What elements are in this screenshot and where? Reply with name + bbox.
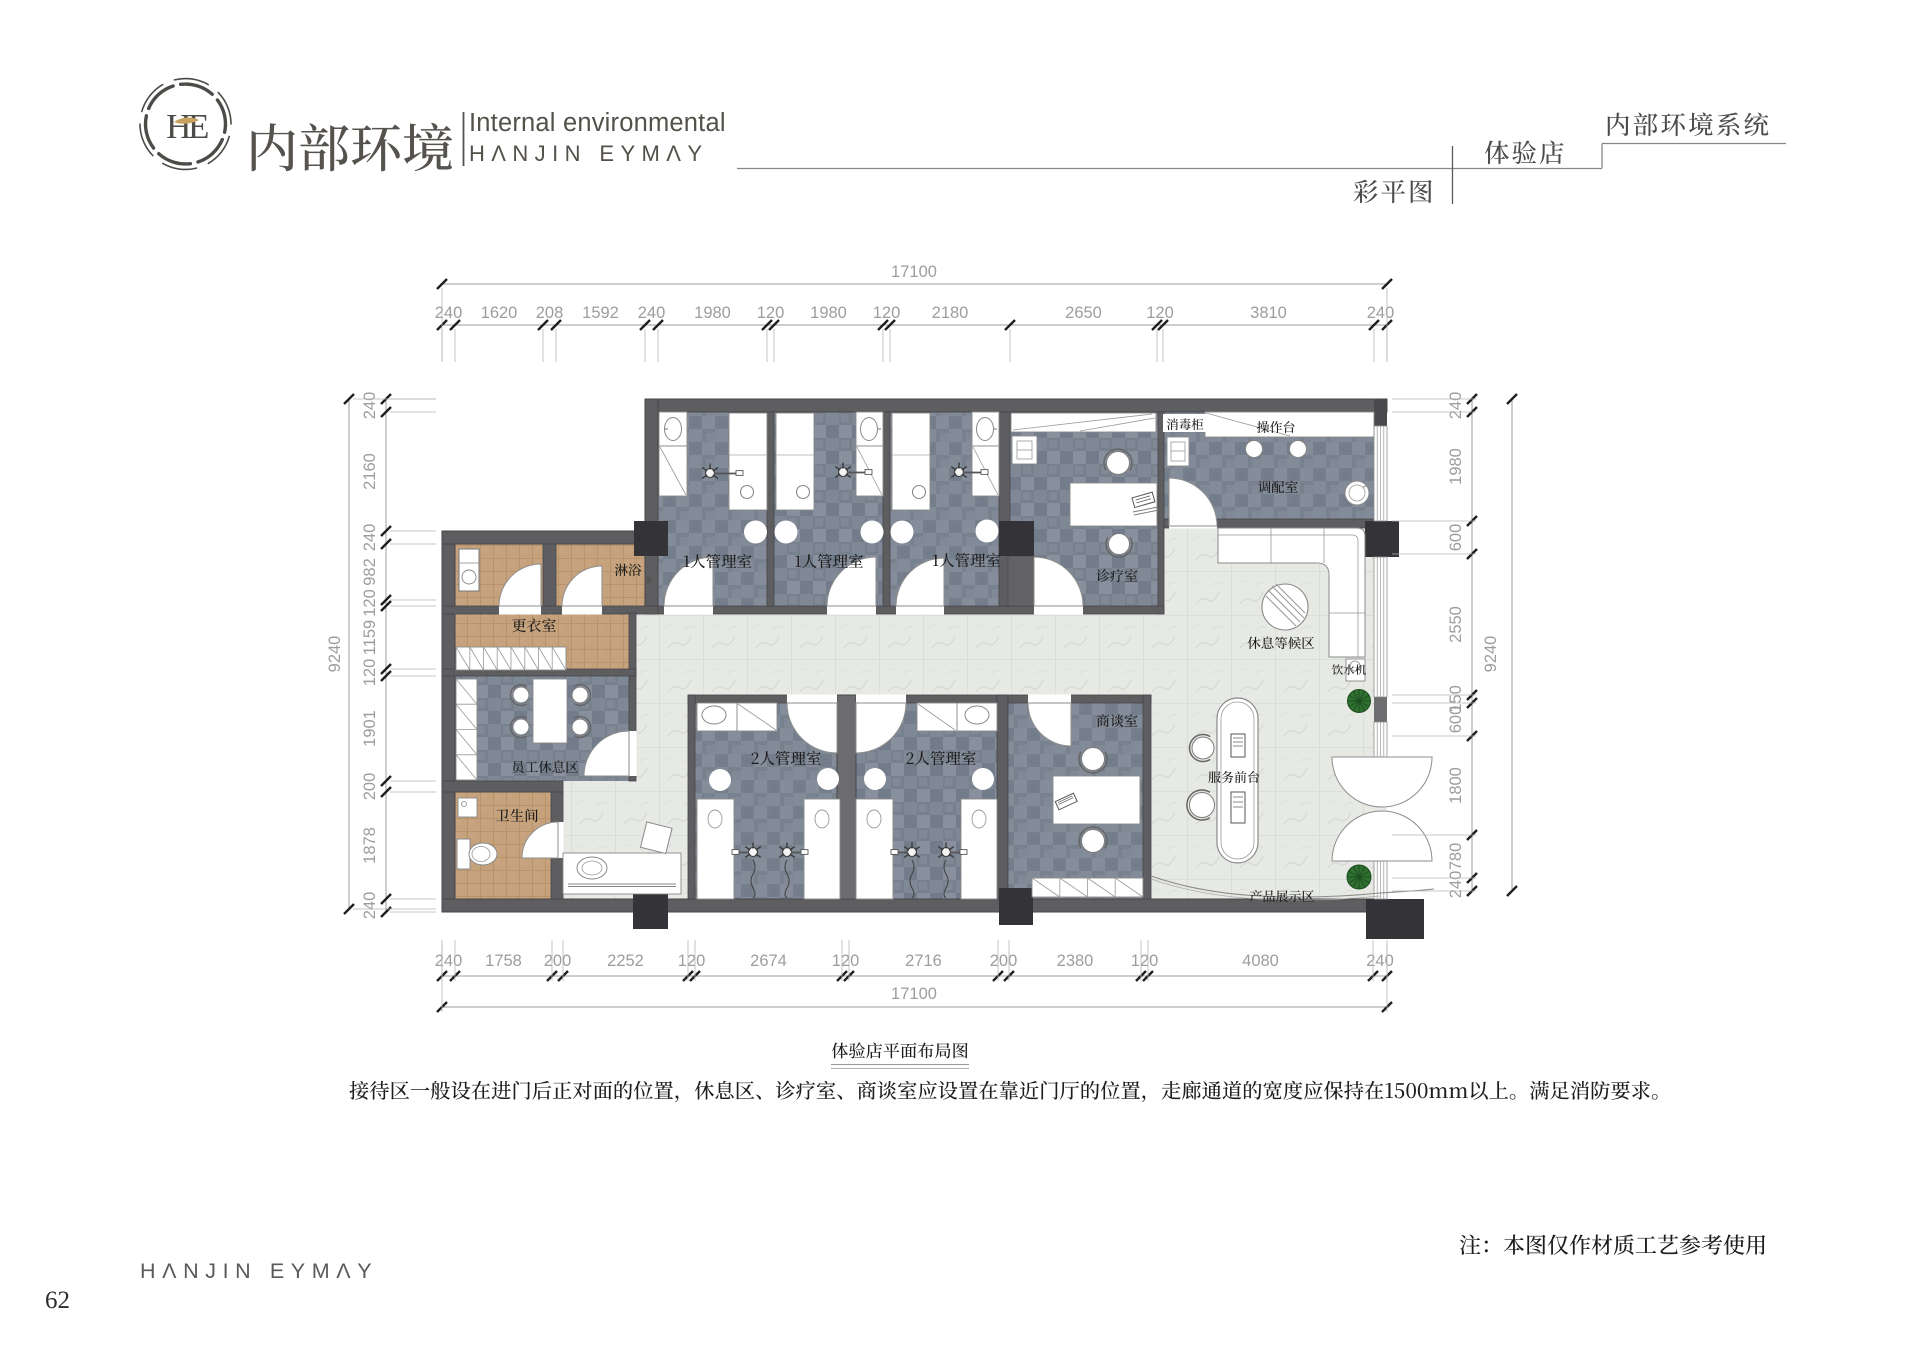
svg-text:1980: 1980 bbox=[810, 304, 847, 322]
svg-text:240: 240 bbox=[1366, 952, 1394, 970]
svg-text:1592: 1592 bbox=[582, 304, 619, 322]
svg-text:1901: 1901 bbox=[361, 710, 379, 747]
svg-text:17100: 17100 bbox=[891, 263, 937, 281]
svg-text:2650: 2650 bbox=[1065, 304, 1102, 322]
svg-text:1159: 1159 bbox=[361, 620, 379, 655]
svg-text:200: 200 bbox=[544, 952, 572, 970]
svg-text:2380: 2380 bbox=[1057, 952, 1094, 970]
svg-text:2716: 2716 bbox=[905, 952, 942, 970]
svg-text:2160: 2160 bbox=[361, 453, 379, 490]
svg-text:1758: 1758 bbox=[485, 952, 522, 970]
svg-text:120: 120 bbox=[1146, 304, 1174, 322]
svg-text:HE: HE bbox=[166, 107, 208, 146]
svg-text:120: 120 bbox=[873, 304, 901, 322]
svg-text:120: 120 bbox=[1131, 952, 1159, 970]
svg-text:2550: 2550 bbox=[1447, 606, 1465, 643]
svg-text:1620: 1620 bbox=[481, 304, 518, 322]
svg-text:240: 240 bbox=[1447, 392, 1465, 420]
svg-text:17100: 17100 bbox=[891, 985, 937, 1003]
svg-text:2252: 2252 bbox=[607, 952, 644, 970]
svg-text:2674: 2674 bbox=[750, 952, 787, 970]
svg-text:200: 200 bbox=[990, 952, 1018, 970]
svg-text:9240: 9240 bbox=[326, 636, 344, 673]
svg-text:240: 240 bbox=[638, 304, 666, 322]
svg-text:HΛNJIN EYMΛY: HΛNJIN EYMΛY bbox=[140, 1259, 378, 1283]
svg-text:120: 120 bbox=[832, 952, 860, 970]
svg-text:1878: 1878 bbox=[361, 827, 379, 864]
svg-text:240: 240 bbox=[361, 892, 379, 920]
svg-text:600: 600 bbox=[1447, 706, 1465, 734]
svg-text:200: 200 bbox=[361, 773, 379, 801]
svg-text:240: 240 bbox=[1367, 304, 1395, 322]
svg-text:240: 240 bbox=[361, 392, 379, 420]
svg-text:1800: 1800 bbox=[1447, 767, 1465, 804]
svg-text:4080: 4080 bbox=[1242, 952, 1279, 970]
svg-text:120: 120 bbox=[361, 589, 379, 617]
svg-text:240: 240 bbox=[1447, 871, 1465, 899]
svg-text:240: 240 bbox=[435, 304, 463, 322]
svg-text:1980: 1980 bbox=[1447, 448, 1465, 485]
svg-text:9240: 9240 bbox=[1482, 636, 1500, 673]
svg-text:600: 600 bbox=[1447, 524, 1465, 552]
svg-text:Internal environmental: Internal environmental bbox=[469, 109, 726, 137]
svg-text:1980: 1980 bbox=[694, 304, 731, 322]
svg-text:3810: 3810 bbox=[1250, 304, 1287, 322]
svg-text:62: 62 bbox=[45, 1287, 70, 1314]
svg-text:208: 208 bbox=[536, 304, 564, 322]
svg-text:HΛNJIN EYMΛY: HΛNJIN EYMΛY bbox=[469, 141, 708, 166]
svg-text:120: 120 bbox=[678, 952, 706, 970]
svg-text:120: 120 bbox=[757, 304, 785, 322]
svg-text:2180: 2180 bbox=[932, 304, 969, 322]
svg-text:780: 780 bbox=[1447, 843, 1465, 871]
svg-text:240: 240 bbox=[435, 952, 463, 970]
svg-text:982: 982 bbox=[361, 558, 379, 586]
svg-text:240: 240 bbox=[361, 524, 379, 552]
svg-text:120: 120 bbox=[361, 659, 379, 687]
